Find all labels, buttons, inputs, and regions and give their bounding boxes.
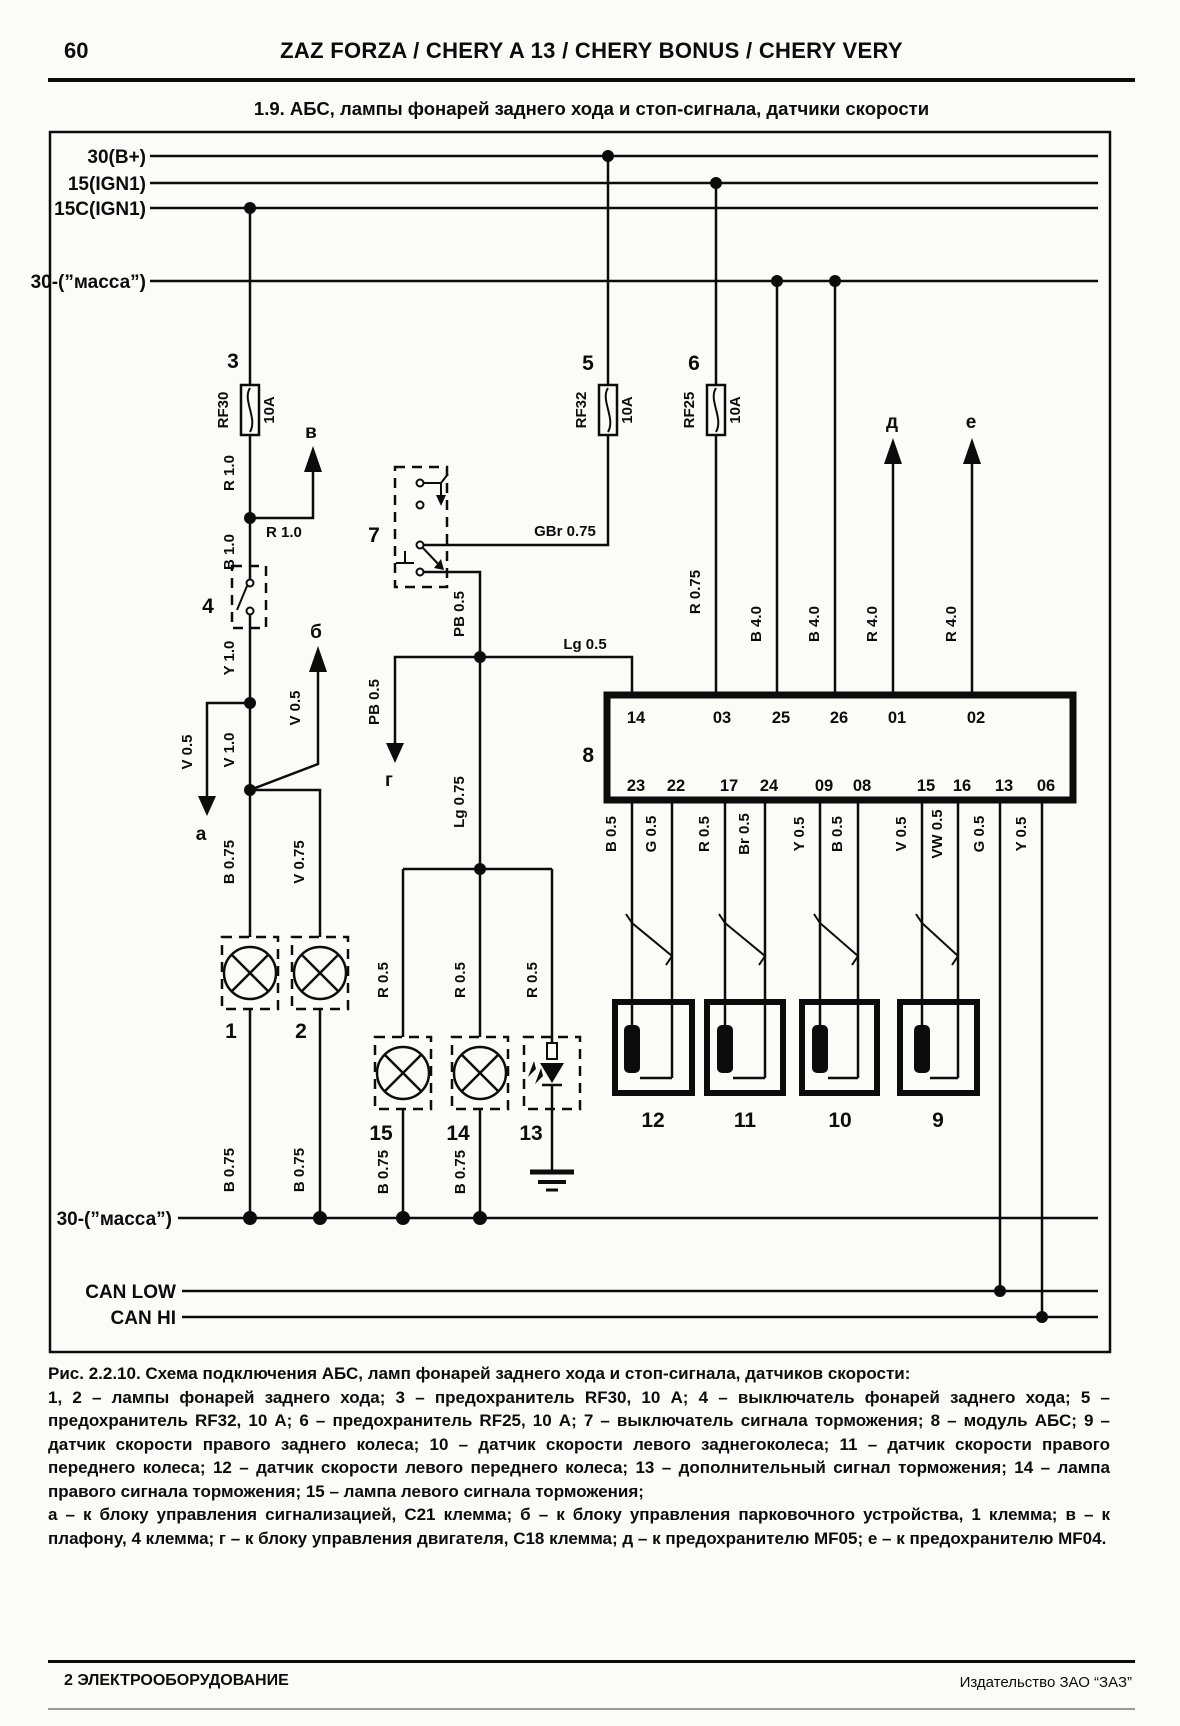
lamp-2-number: 2 [295,1020,307,1043]
wire-label-r10: R 1.0 [221,455,238,491]
pin-top-03: 03 [713,709,731,727]
figure-caption-components: 1, 2 – лампы фонарей заднего хода; 3 – п… [48,1386,1110,1504]
footer-bottom-rule [48,1708,1135,1710]
wire-label-lg075: Lg 0.75 [451,776,468,828]
pin-bottom-16: 16 [953,777,971,795]
fuse-6-number: 6 [688,352,700,375]
pin-bottom-09: 09 [815,777,833,795]
wire-label-v05-a: V 0.5 [179,734,196,769]
bus-label-can-hi: CAN HI [111,1308,176,1329]
wire-label-v05-b: V 0.5 [287,690,304,725]
bus-label-15ign1: 15(IGN1) [68,174,146,195]
wire-label-r40-pin01: R 4.0 [864,606,881,642]
junction-dots [243,150,722,1225]
arrow-b-label: б [310,622,322,643]
figure-caption: Рис. 2.2.10. Схема подключения АБС, ламп… [48,1362,1110,1550]
wire-label-br05-24: Br 0.5 [736,813,753,855]
footer-chapter: 2 ЭЛЕКТРООБОРУДОВАНИЕ [64,1672,289,1690]
wire-label-r05-lamp15: R 0.5 [375,962,392,998]
fuse-3-number: 3 [227,350,239,373]
wire-label-r40-pin02: R 4.0 [943,606,960,642]
bus-label-15c-ign1: 15C(IGN1) [54,199,146,220]
wire-label-r05-lamp14: R 0.5 [452,962,469,998]
sensor-10-wiring: Y 0.5 B 0.5 10 [791,800,877,1132]
footer-publisher: Издательство ЗАО “ЗАЗ” [960,1674,1132,1691]
fuse-6: 6 RF25 10A [681,183,744,435]
wire-label-gbr075: GBr 0.75 [534,523,596,540]
arrow-a-label: а [196,824,207,845]
branch-a: а V 0.5 [179,703,250,845]
lamp-2-reverse-lamp: V 0.75 2 B 0.75 [250,790,348,1218]
sensor-10-number: 10 [828,1109,851,1132]
wire-label-vw05-16: VW 0.5 [929,809,946,858]
fuse-3: 3 RF30 10A [215,208,278,435]
pin-top-14: 14 [627,709,646,727]
wire-label-r05-lamp13: R 0.5 [524,962,541,998]
switch-4-number: 4 [202,595,214,618]
wire-label-g05-13: G 0.5 [971,816,988,853]
wire-label-b10: B 1.0 [221,534,238,570]
wire-label-r075: R 0.75 [687,570,704,614]
branch-g: г PB 0.5 [366,657,480,791]
wire-label-b40-pin25: B 4.0 [748,606,765,642]
fuse-6-rating: 10A [727,396,744,424]
manual-page: 60 ZAZ FORZA / CHERY A 13 / CHERY BONUS … [0,0,1180,1726]
led-13-additional-stop-lamp: R 0.5 13 [519,869,580,1190]
pin-bottom-22: 22 [667,777,685,795]
pin-top-01: 01 [888,709,906,727]
fuse-3-name: RF30 [215,392,232,429]
figure-caption-title: Рис. 2.2.10. Схема подключения АБС, ламп… [48,1362,1110,1386]
wire-label-b075-lamp15: B 0.75 [375,1150,392,1194]
sensor-12-wiring: B 0.5 G 0.5 12 [603,800,692,1132]
wire-label-lg05: Lg 0.5 [563,636,606,653]
sensor-9-number: 9 [932,1109,944,1132]
figure-caption-letters: а – к блоку управления сигнализацией, С2… [48,1503,1110,1550]
fuse-5-rating: 10A [619,396,636,424]
lamp-15-left-stop-lamp: R 0.5 15 B 0.75 [369,869,431,1218]
pin-top-25: 25 [772,709,790,727]
fuse-3-rating: 10A [261,396,278,424]
lamp-14-right-stop-lamp: R 0.5 14 B 0.75 [446,869,508,1218]
wire-label-g05-22: G 0.5 [643,816,660,853]
arrow-v-label: в [305,422,317,443]
wire-label-r05-17: R 0.5 [696,816,713,852]
wire-label-pb05-g: PB 0.5 [366,679,383,725]
footer-rule [48,1660,1135,1663]
wire-label-y05-09: Y 0.5 [791,817,808,852]
pin-bottom-23: 23 [627,777,645,795]
module-supply-wires: B 4.0 B 4.0 д R 4.0 е R 4.0 [748,275,981,695]
arrow-e-label: е [966,412,977,433]
led-13-number: 13 [519,1122,542,1145]
pin-bottom-08: 08 [853,777,871,795]
lamp-14-number: 14 [446,1122,470,1145]
wire-label-b075-lamp1-bottom: B 0.75 [221,1148,238,1192]
wire-label-y10: Y 1.0 [221,641,238,676]
branch-v: в R 1.0 [250,422,322,541]
wire-label-b05-23: B 0.5 [603,816,620,852]
lamp-15-number: 15 [369,1122,393,1145]
sensor-12-number: 12 [641,1109,664,1132]
sensor-9-wiring: V 0.5 VW 0.5 9 [893,800,977,1132]
arrow-g-label: г [385,770,393,791]
sensor-11-number: 11 [734,1109,757,1132]
pin-bottom-13: 13 [995,777,1013,795]
wire-label-r10-branch: R 1.0 [266,524,302,541]
wire-label-v05-15: V 0.5 [893,816,910,851]
wire-label-b075-lamp1: B 0.75 [221,840,238,884]
pin-top-02: 02 [967,709,985,727]
fuse-5-name: RF32 [573,392,590,429]
wire-label-b40-pin26: B 4.0 [806,606,823,642]
pin-bottom-06: 06 [1037,777,1055,795]
switch-4-reverse-lamp-switch: 4 [202,566,266,628]
pin-bottom-24: 24 [760,777,779,795]
abs-module-number: 8 [582,744,594,767]
wire-label-b075-lamp14: B 0.75 [452,1150,469,1194]
wire-label-pb05: PB 0.5 [451,591,468,637]
pin-bottom-17: 17 [720,777,738,795]
bus-label-can-low: CAN LOW [85,1282,176,1303]
pin-top-26: 26 [830,709,848,727]
bus-label-30b: 30(B+) [87,147,146,168]
bus-label-ground-top: 30-(”масса”) [31,272,146,293]
wire-label-v075-lamp2: V 0.75 [291,840,308,883]
can-wires: G 0.5 Y 0.5 [971,800,1048,1323]
wire-label-b075-lamp2-bottom: B 0.75 [291,1148,308,1192]
arrow-d-label: д [886,412,898,433]
fuse-5: 5 RF32 10A [573,156,636,435]
switch-7-brake-light-switch: 7 [368,467,448,587]
branch-b: б V 0.5 [250,622,327,790]
fuse-6-name: RF25 [681,392,698,429]
abs-module-8: 8 14 03 25 26 01 02 23 22 17 24 09 08 15… [582,695,1073,800]
wire-label-b05-08: B 0.5 [829,816,846,852]
pin-bottom-15: 15 [917,777,935,795]
fuse-5-number: 5 [582,352,594,375]
bus-label-ground-bottom: 30-(”масса”) [57,1209,172,1230]
lamp-1-number: 1 [225,1020,237,1043]
sensor-11-wiring: R 0.5 Br 0.5 11 [696,800,783,1132]
switch-7-number: 7 [368,524,380,547]
wire-label-y05-06: Y 0.5 [1013,817,1030,852]
wire-label-v10: V 1.0 [221,732,238,767]
